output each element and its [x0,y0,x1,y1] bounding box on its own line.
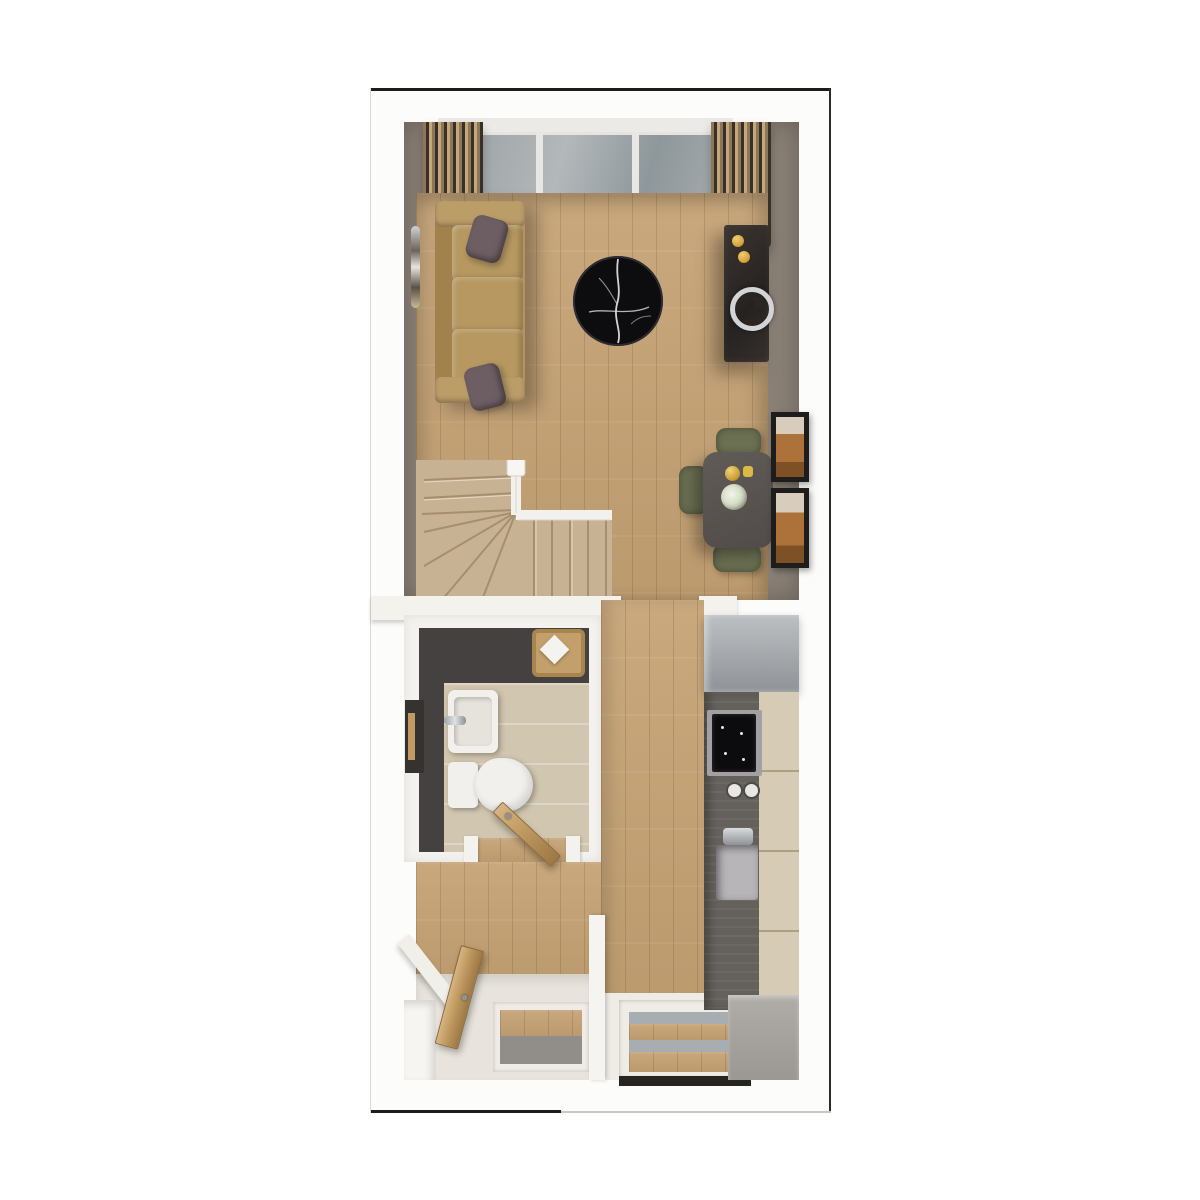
faucet-icon [444,716,466,725]
winder-stairs [416,460,612,600]
doormat [500,1036,582,1064]
toilet-cistern [448,762,478,808]
glazing-pane [629,1040,733,1052]
wall-frame-lower [771,488,809,568]
page-background [0,0,1200,1200]
hallway-floor [416,862,601,980]
plan-outline-bottom-left [371,1110,561,1113]
towel-rail-icon [408,713,415,760]
plan-outline-right [829,88,831,1113]
towel-rail-panel [405,700,424,773]
plan-outline-top [371,88,831,91]
ring-ornament [730,287,774,331]
hob-burner-icon [721,726,724,729]
storage-nook [404,1000,436,1080]
corridor-floor [601,600,704,1010]
towel [540,635,570,665]
dining-chair-bottom [713,544,761,572]
wall-frame-upper [771,412,809,482]
newel-post [507,460,525,476]
sofa-cushion [452,277,523,333]
door-jamb [566,836,580,864]
doormat-recess [493,1002,589,1072]
kitchen-base-cabinets [759,692,799,1010]
kitchen-jar [726,782,743,799]
towel-basket [532,629,585,677]
door-jamb [464,836,478,864]
sofa [435,201,525,403]
kitchen-tall-unit [704,615,799,692]
hob-burner-icon [740,732,743,735]
hob-burner-icon [724,752,727,755]
appliance-block [728,995,799,1080]
kitchen-jar [743,782,760,799]
kitchen-sink [716,845,758,900]
glazing-wood-rail [629,1052,733,1072]
door-handle-icon [461,994,468,1001]
glazing-pane [629,1012,733,1024]
gold-vase [725,466,740,481]
floor-plan [370,88,831,1113]
dining-table [703,452,773,548]
ring-ornament-gap [754,297,763,307]
hob-burner-icon [742,758,745,761]
gold-cup [743,466,753,477]
doormat-wood-strip [500,1010,582,1036]
handrail [516,460,612,520]
round-marble-coffee-table [571,254,665,348]
candle-icon [738,251,750,263]
plan-outline-bottom-right [561,1111,831,1113]
flower-bowl [721,484,747,510]
kitchen-faucet-icon [723,828,753,845]
induction-hob [712,714,756,772]
candle-icon [732,235,744,247]
washbasin [448,690,498,753]
glazing-wood-rail [629,1024,733,1040]
hall-kitchen-wall [589,915,605,1080]
wall-mirror [411,226,420,308]
door-handle-icon [504,812,512,820]
media-console [724,225,769,362]
